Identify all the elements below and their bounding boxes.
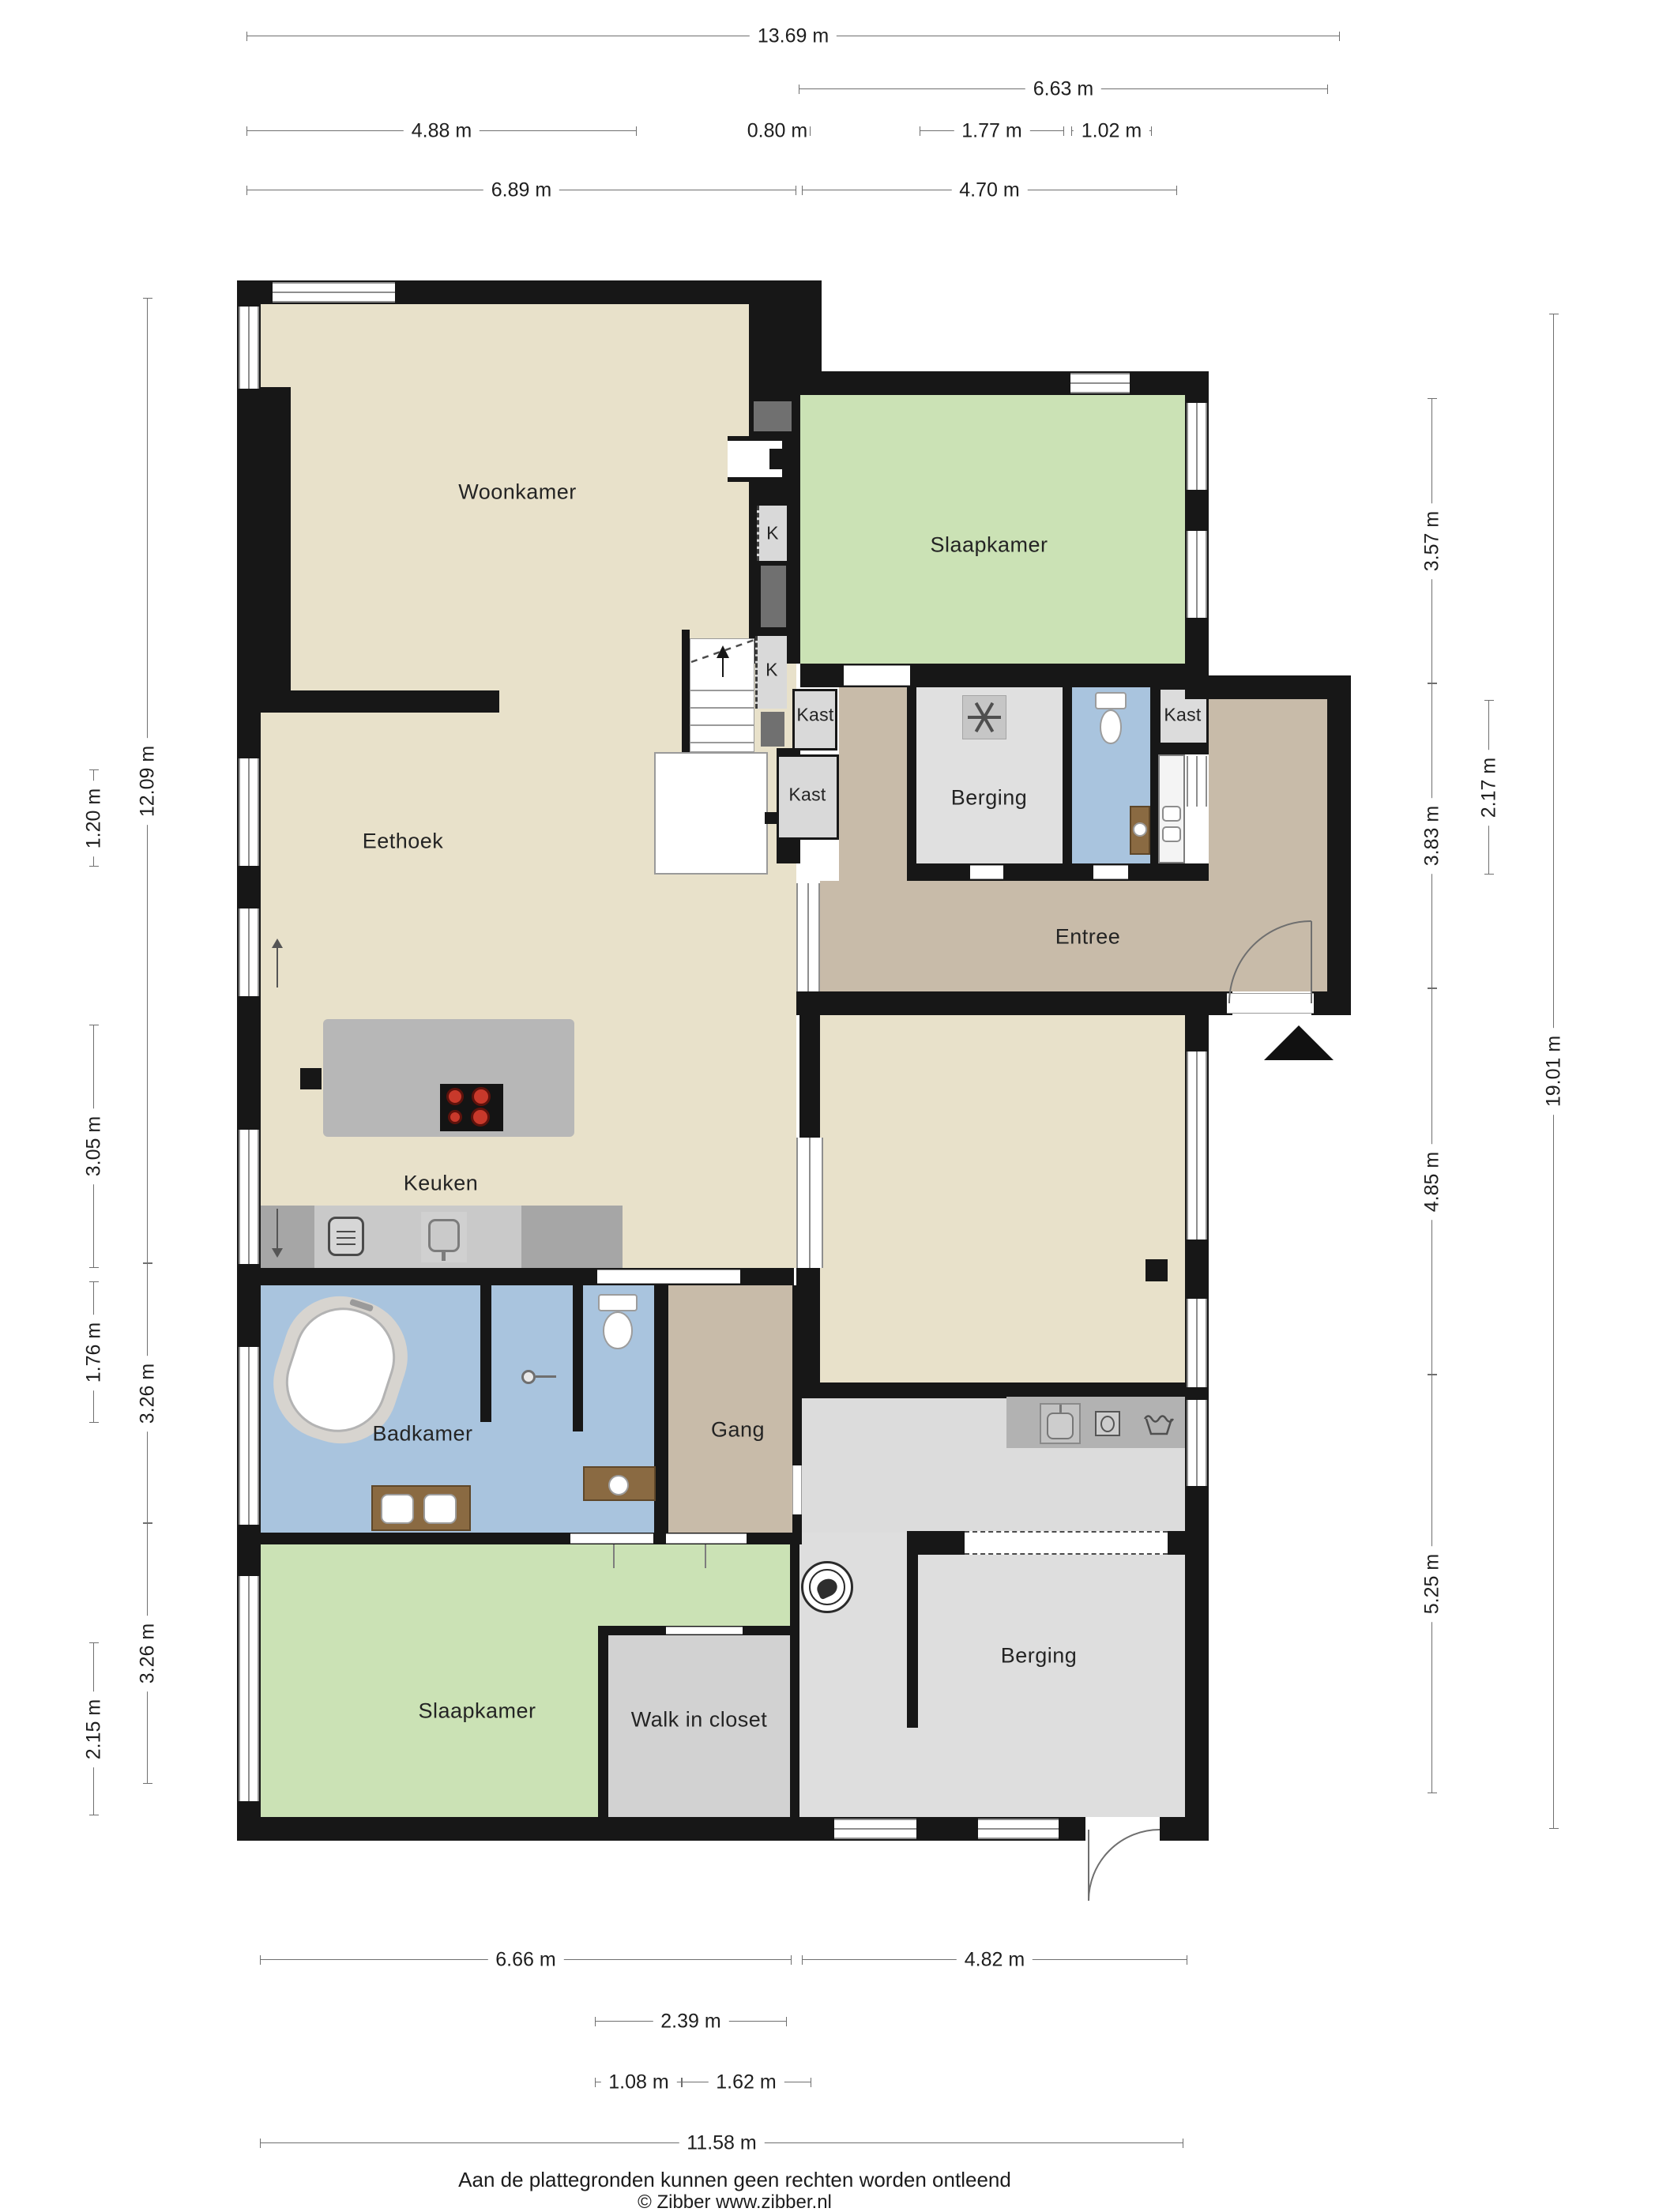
washer-icon (1095, 1411, 1120, 1436)
opening-slaapkamer-top (844, 665, 910, 686)
floorplan-page: Woonkamer Eethoek Keuken Badkamer Gang S… (0, 0, 1659, 2212)
floor-landing (654, 752, 768, 875)
dim-left-326a: 3.26 m (147, 1263, 148, 1523)
floor-entree-bump (1209, 699, 1327, 991)
window-left-6 (239, 1576, 259, 1801)
dim-left-215: 2.15 m (93, 1643, 94, 1815)
toilet-badkamer (598, 1294, 638, 1311)
wall-bump-top (1185, 675, 1351, 699)
dim-top-689: 6.89 m (247, 190, 796, 190)
north-arrow-icon (1264, 1025, 1334, 1060)
dim-right-357: 3.57 m (1431, 399, 1432, 683)
wc-vanity-sink (608, 1475, 629, 1495)
toilet-badkamer-bowl (603, 1311, 633, 1349)
laundry-basket-icon (1142, 1411, 1176, 1436)
dim-top-right-section: 6.63 m (799, 88, 1327, 89)
dim-right-total: 19.01 m (1553, 314, 1554, 1828)
laundry-sink-tap (1059, 1405, 1062, 1413)
dim-bottom-total: 11.58 m (261, 2142, 1183, 2143)
opening-berging-ext-door (1085, 1817, 1160, 1841)
window-left-3 (239, 908, 259, 996)
arrow-up-stem (276, 946, 278, 987)
wall-wc-left (1063, 687, 1072, 863)
wall-berging-row-bottom (907, 863, 1209, 881)
fan-box (962, 695, 1006, 739)
dim-bottom-666: 6.66 m (261, 1959, 791, 1960)
window-top-woonkamer (273, 282, 395, 303)
dim-bottom-482: 4.82 m (803, 1959, 1187, 1960)
wall-dash-seg-a (907, 1531, 965, 1555)
window-right-slk-2 (1187, 531, 1207, 618)
wall-dash-seg-b (1168, 1531, 1185, 1555)
window-bottom-2 (978, 1819, 1059, 1839)
door-leaf-mark-1 (613, 1544, 615, 1568)
vanity-sink-1 (381, 1494, 414, 1524)
wall-stub-eethoek (261, 690, 499, 713)
opening-gang-slaapkamer (666, 1533, 747, 1544)
window-left-5 (239, 1347, 259, 1525)
dim-left-120: 1.20 m (93, 770, 94, 866)
arrow-down-stem (276, 1209, 278, 1250)
window-right-laundry (1187, 1400, 1207, 1486)
dim-left-305: 3.05 m (93, 1025, 94, 1267)
dim-left-326b: 3.26 m (147, 1523, 148, 1783)
wall-left-thick (261, 387, 291, 690)
dim-top-488: 4.88 m (247, 130, 636, 131)
opening-dashed-berging (965, 1531, 1168, 1555)
dim-bottom-239: 2.39 m (596, 2021, 786, 2022)
wall-kast3-bottom (1158, 745, 1209, 754)
wall-bump-bottom-b (1311, 991, 1351, 1015)
opening-wc (1093, 865, 1128, 879)
vanity-sink-2 (423, 1494, 457, 1524)
window-left-2 (239, 758, 259, 866)
room-label-keuken: Keuken (404, 1172, 479, 1196)
room-label-gang: Gang (711, 1418, 765, 1443)
room-label-slaapkamer-bottom: Slaapkamer (418, 1699, 536, 1724)
room-label-entree: Entree (1055, 925, 1121, 950)
wall-berging-top-left (907, 687, 916, 863)
floor-room-right (820, 1015, 1185, 1382)
burner-1 (446, 1088, 464, 1105)
dim-right-383: 3.83 m (1431, 683, 1432, 988)
dim-top-080: 0.80 m (745, 130, 810, 131)
opening-keuken-gang (597, 1270, 740, 1284)
dim-right-217: 2.17 m (1488, 701, 1489, 874)
glass-partition-keuken (796, 1138, 823, 1268)
dim-bottom-162: 1.62 m (682, 2082, 811, 2082)
wall-bump-right (1327, 675, 1351, 1015)
wall-wc-badkamer (573, 1285, 583, 1431)
burner-4 (471, 1108, 490, 1127)
dim-top-470: 4.70 m (803, 190, 1176, 190)
window-left-4 (239, 1130, 259, 1264)
room-label-woonkamer: Woonkamer (458, 480, 577, 505)
kitchen-counter-hood (521, 1206, 623, 1268)
wall-top-slaapkamer (798, 371, 1209, 395)
cooktop-icon (440, 1084, 503, 1131)
dim-right-525: 5.25 m (1431, 1375, 1432, 1793)
wall-wc-right (1150, 687, 1158, 881)
window-right-slk-1 (1187, 403, 1207, 490)
floor-slaapkamer-bottom-right (598, 1544, 792, 1626)
room-label-berging-bottom: Berging (1001, 1644, 1078, 1668)
wall-entree-bottom (796, 991, 1209, 1015)
opening-gang-berging (792, 1465, 802, 1514)
door-leaf-mark-2 (705, 1544, 706, 1568)
label-k-1: K (766, 523, 779, 544)
wall-room-right-bottom (799, 1382, 1185, 1398)
opening-front-door (1227, 993, 1314, 1014)
sink-tap (442, 1251, 446, 1261)
wall-closet-left (598, 1626, 608, 1817)
floor-berging-bottom (799, 1533, 1185, 1817)
window-right-room-2 (1187, 1299, 1207, 1387)
stairs-treads (690, 674, 754, 751)
laundry-sink-basin (1047, 1413, 1074, 1439)
kitchen-counter-left (261, 1206, 314, 1268)
stairs (690, 638, 754, 752)
pillar-eethoek (300, 1068, 322, 1089)
niche-notch (769, 449, 787, 469)
dryer-icon (801, 1561, 853, 1613)
window-right-room-1 (1187, 1051, 1207, 1240)
shower-head-icon (521, 1370, 536, 1384)
wc-top-sink (1133, 822, 1147, 837)
dim-top-102: 1.02 m (1072, 130, 1151, 131)
floor-gang (668, 1285, 792, 1533)
shower-arm-icon (536, 1375, 556, 1378)
flue-a (754, 401, 792, 431)
label-kast-1: Kast (796, 705, 833, 726)
dim-top-total: 13.69 m (247, 36, 1339, 36)
window-right-niche (1187, 756, 1207, 807)
flue-c (761, 712, 784, 747)
toilet-wc-tank (1095, 692, 1127, 709)
sink-basin (428, 1219, 460, 1252)
opening-badkamer-slaapkamer (570, 1533, 653, 1544)
opening-walk-in-closet (666, 1627, 743, 1635)
wall-bottom (237, 1817, 1209, 1841)
room-label-slaapkamer-top: Slaapkamer (930, 533, 1048, 558)
niche-fixture-2 (1162, 826, 1181, 842)
window-top-slaapkamer (1070, 373, 1130, 393)
flue-b (761, 566, 786, 627)
wall-closet-berging (790, 1533, 799, 1817)
room-label-berging-top: Berging (951, 786, 1028, 811)
dim-left-1209: 12.09 m (147, 299, 148, 1263)
microwave-waves (337, 1226, 355, 1245)
microwave-icon (328, 1217, 364, 1256)
floor-hall-strip (839, 687, 907, 881)
kitchen-sink-icon (421, 1212, 467, 1262)
room-label-eethoek: Eethoek (363, 829, 444, 854)
stairs-arrow-stem (722, 656, 724, 677)
wall-badkamer-divider (480, 1285, 491, 1422)
dim-bottom-108: 1.08 m (596, 2082, 682, 2082)
toilet-wc-bowl (1100, 709, 1122, 744)
wall-stairs-side (682, 630, 690, 752)
dim-left-176: 1.76 m (93, 1282, 94, 1422)
glass-partition-entree (796, 883, 820, 991)
label-kast-2: Kast (788, 784, 826, 806)
niche-fixture-1 (1162, 806, 1181, 822)
laundry-sink-icon (1040, 1403, 1081, 1444)
label-k-2: K (766, 660, 778, 681)
footer-disclaimer: Aan de plattegronden kunnen geen rechten… (142, 2168, 1327, 2192)
arrow-down-icon (272, 1248, 283, 1258)
label-kast-3: Kast (1164, 705, 1201, 726)
burner-2 (472, 1087, 491, 1106)
room-label-walk-in-closet: Walk in closet (631, 1708, 768, 1732)
double-vanity (371, 1485, 471, 1531)
washer-drum (1100, 1416, 1115, 1432)
window-bottom-1 (834, 1819, 916, 1839)
floor-slaapkamer-bottom-left (261, 1544, 598, 1817)
opening-berging-top (970, 865, 1003, 879)
footer-copyright: © Zibber www.zibber.nl (142, 2191, 1327, 2212)
window-left-1 (239, 307, 259, 389)
dim-right-485: 4.85 m (1431, 988, 1432, 1375)
wc-vanity (583, 1466, 656, 1501)
dim-top-177: 1.77 m (920, 130, 1063, 131)
wall-berging-stub (907, 1547, 918, 1728)
floor-slaapkamer-top (800, 395, 1185, 664)
wc-top-vanity (1130, 806, 1150, 855)
pillar-room-right (1145, 1259, 1168, 1281)
burner-3 (448, 1110, 462, 1124)
room-label-badkamer: Badkamer (372, 1422, 472, 1446)
wall-badkamer-gang (654, 1285, 668, 1533)
